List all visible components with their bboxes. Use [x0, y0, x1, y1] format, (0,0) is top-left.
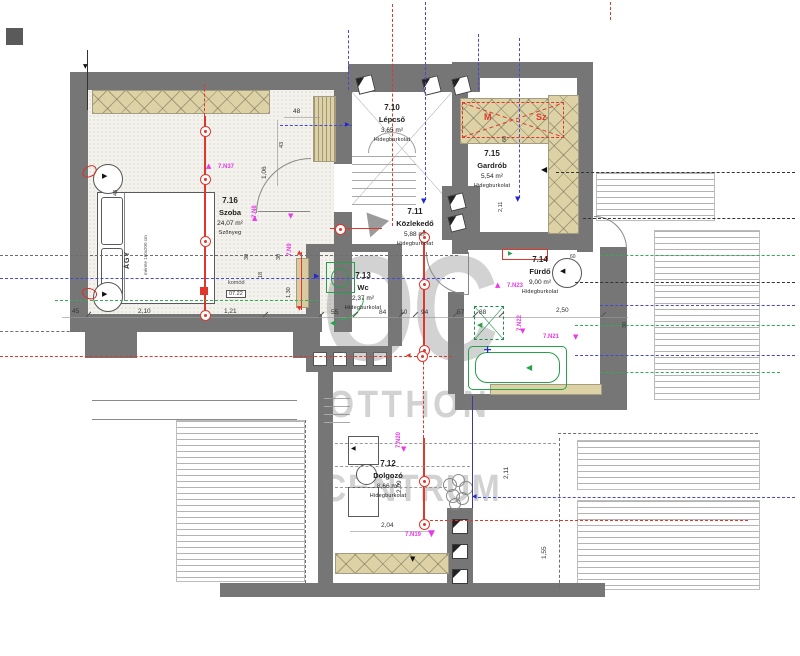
- radiator-pipe: [301, 252, 302, 310]
- room-number: 7.15: [452, 148, 532, 160]
- marker-triangle-icon: ▼: [288, 213, 293, 220]
- marker-label: 7.N21: [543, 334, 559, 340]
- dim-text: 30: [622, 322, 628, 328]
- ref-arrow-icon: ▼: [515, 196, 520, 203]
- window: [452, 544, 468, 559]
- dim-text: 2,09: [396, 480, 403, 493]
- dim-text: 84: [379, 309, 386, 316]
- room-label-lepcso: 7.10 Lépcső 3,65 m² Hidegburkolat: [352, 102, 432, 145]
- vent-window: [451, 75, 472, 96]
- room-name: Dolgozó: [348, 470, 428, 482]
- terrace-hatch-bottom-left: [176, 420, 305, 582]
- dim-text: 57: [457, 309, 464, 316]
- lamp-arrow-icon: ▶: [102, 173, 107, 180]
- sill-dolgozo: [335, 553, 449, 574]
- room-name: Közlekedő: [375, 218, 455, 230]
- room-area: 8,66 m²: [348, 482, 428, 492]
- nightstand: [93, 282, 123, 312]
- room-name: Fürdő: [500, 266, 580, 278]
- ref-line-gray-h: [583, 218, 795, 219]
- marker-label: 7.N9: [287, 243, 293, 256]
- ref-line-gray-v: [559, 438, 560, 588]
- room-number: 7.13: [325, 270, 401, 282]
- section-node: [200, 310, 211, 321]
- wardrobe-bedroom-side: [313, 96, 336, 162]
- survey-line: [87, 50, 88, 110]
- ref-line-gray-h: [0, 255, 458, 256]
- dim-text: 30: [276, 254, 282, 260]
- ref-line-blue-h: [600, 305, 795, 306]
- dim-text: 1,21: [224, 308, 237, 315]
- dim-text: 2,04: [381, 522, 394, 529]
- ref-line-gray-h: [558, 433, 758, 434]
- marker-triangle-icon: ▲: [495, 282, 500, 289]
- room-floor: Hidegburkolat: [348, 492, 428, 501]
- dim-text: 2,50: [556, 307, 569, 314]
- terrace-hatch-bottom-right-a: [577, 440, 760, 490]
- ref-line-blue-v: [425, 2, 426, 200]
- msz-flag-box: [462, 102, 564, 138]
- wc-arrow-icon: ▶: [314, 273, 319, 280]
- flag-sz-label: Sz: [536, 112, 547, 122]
- dim-text: 30: [244, 254, 250, 260]
- dim-text: 60: [570, 254, 576, 260]
- wall-segment: [70, 72, 352, 90]
- ref-line-blue-h: [478, 497, 795, 498]
- entry-arrow-icon: ◀: [541, 166, 547, 174]
- bed-divider: [124, 193, 125, 301]
- dim-text: 10: [400, 309, 407, 316]
- dim-text: 1,30: [286, 287, 292, 298]
- section-line: [204, 84, 205, 116]
- section-node: [200, 174, 211, 185]
- dim-text: 43: [279, 142, 285, 148]
- room-label-dolgozo: 7.12 Dolgozó 8,66 m² Hidegburkolat: [348, 458, 428, 501]
- room-floor: Hidegburkolat: [352, 136, 432, 145]
- marker-triangle-icon: ▼: [428, 530, 435, 539]
- flow-arrow-icon: ▼: [297, 306, 302, 312]
- flag-m-label: M: [484, 112, 492, 122]
- ref-line-blue-h: [575, 355, 795, 356]
- section-node: [419, 279, 430, 290]
- dim-text: 55: [331, 309, 338, 316]
- marker-triangle-icon: ▲: [252, 215, 257, 222]
- ref-line-navy-v: [472, 396, 473, 508]
- marker-triangle-icon: ▼: [520, 328, 525, 335]
- dim-text: 1,55: [541, 546, 548, 559]
- dim-text: 2,11: [498, 202, 504, 212]
- dim-text: 60: [502, 136, 508, 142]
- room-floor: Szőnyeg: [195, 229, 265, 238]
- room-floor: Hidegburkolat: [375, 240, 455, 249]
- room-area: 2,37 m²: [325, 294, 401, 304]
- dim-text: 48: [293, 108, 300, 115]
- room-name: Wc: [325, 282, 401, 294]
- dim-text: 1,06: [261, 166, 268, 179]
- marker-label: 7.N23: [507, 283, 523, 289]
- ref-line-green-h: [600, 372, 780, 373]
- dim-text: 2,11: [503, 467, 510, 479]
- door-leaf: [468, 252, 469, 294]
- marker-triangle-icon: ▼: [401, 446, 406, 453]
- plant: [449, 498, 461, 510]
- room-label-kozlekedo: 7.11 Közlekedő 5,88 m² Hidegburkolat: [375, 206, 455, 249]
- section-node-square: [200, 287, 208, 295]
- ref-line-gray-h: [575, 282, 795, 283]
- eaves-band: [92, 400, 297, 420]
- dim-text: 45: [72, 308, 79, 315]
- room-area: 5,54 m²: [452, 172, 532, 182]
- room-number: 7.11: [375, 206, 455, 218]
- wall-segment: [452, 62, 593, 78]
- desk-arrow-icon: ◀: [351, 446, 356, 452]
- survey-arrow-icon: ▼: [83, 64, 88, 70]
- section-node: [200, 126, 211, 137]
- bed-size-label: mérete 160x200 cm: [143, 235, 148, 275]
- sill-arrow-icon: ▼: [410, 556, 415, 563]
- wardrobe-bedroom-top: [92, 90, 270, 114]
- ref-arrow-icon: ◀: [472, 494, 477, 500]
- window: [452, 519, 468, 534]
- lamp-arrow-icon: ▶: [102, 291, 107, 298]
- room-label-gardrob: 7.15 Gardrób 5,54 m² Hidegburkolat: [452, 148, 532, 191]
- room-name: Gardrób: [452, 160, 532, 172]
- room-number: 7.10: [352, 102, 432, 114]
- section-node: [335, 224, 346, 235]
- shower-arrow-icon: ◀: [477, 322, 482, 329]
- dim-text: 94: [421, 309, 428, 316]
- terrace-hatch-top-right: [596, 172, 715, 221]
- bed-label: ÁGY: [124, 251, 131, 269]
- dim-text: 18: [258, 272, 264, 278]
- room-area: 5,88 m²: [375, 230, 455, 240]
- wall-segment: [577, 62, 593, 252]
- marker-triangle-icon: ▲: [206, 163, 211, 170]
- ref-line-blue-v: [478, 34, 479, 90]
- tub-plus-icon: +: [483, 344, 492, 355]
- grid-line: [335, 443, 556, 444]
- ref-arrow-icon: ◀: [406, 353, 411, 359]
- tub-arrow-icon: ◀: [526, 364, 532, 372]
- ref-line-green-h: [575, 325, 795, 326]
- ref-arrow-icon: ▶: [345, 122, 350, 128]
- ref-line-gray-v: [305, 420, 306, 583]
- dim-line-v: [277, 120, 278, 186]
- flow-arrow-icon: ▶: [508, 251, 513, 257]
- room-area: 3,65 m²: [352, 126, 432, 136]
- ref-line-green-h: [600, 255, 795, 256]
- room-label-wc: 7.13 Wc 2,37 m² Hidegburkolat: [325, 270, 401, 313]
- ref-line-gray-h: [0, 331, 85, 332]
- ref-line-gray-h: [556, 172, 795, 173]
- room-label-furdo: 7.14 Fürdő 9,00 m² Hidegburkolat: [500, 254, 580, 297]
- komod-code: 07.22: [226, 290, 246, 298]
- bathtub-inner: [475, 352, 560, 383]
- ref-line-blue-h: [280, 125, 352, 126]
- dim-text: 43: [113, 190, 119, 196]
- terrace-hatch-bottom-right-b: [577, 500, 760, 590]
- ref-arrow-icon: ▼: [421, 198, 426, 205]
- flow-arrow-icon: ▲: [297, 250, 302, 256]
- dim-line-h: [284, 117, 320, 118]
- marker-label: 7.N37: [218, 164, 234, 170]
- fixture-arrow-icon: ◀: [560, 268, 565, 275]
- section-node: [417, 351, 428, 362]
- room-floor: Hidegburkolat: [452, 182, 532, 191]
- ref-line-blue-v: [348, 30, 349, 90]
- section-line: [423, 352, 424, 438]
- ref-line-green-h: [55, 300, 318, 301]
- dim-text: 88: [479, 309, 486, 316]
- wall-segment: [220, 583, 605, 597]
- dim-text: 2,10: [138, 308, 151, 315]
- section-node: [200, 236, 211, 247]
- floor-plan: OC OTTHON CENTRUM ÁGY mérete 160x200 cm …: [0, 0, 800, 656]
- wc-arrow-icon: ◀: [330, 320, 335, 327]
- window: [452, 569, 468, 584]
- ref-line-red-h: [0, 356, 452, 357]
- corner-mark: [6, 28, 23, 45]
- door-leaf: [258, 211, 310, 212]
- wall-segment: [85, 332, 137, 358]
- watermark-line2: OTTHON: [328, 384, 490, 427]
- marker-label: 7.N19: [405, 532, 421, 538]
- room-floor: Hidegburkolat: [500, 288, 580, 297]
- room-number: 7.12: [348, 458, 428, 470]
- komod-label: komód: [228, 280, 245, 286]
- marker-triangle-icon: ▼: [573, 334, 578, 341]
- stair-treads: [352, 156, 416, 205]
- room-name: Lépcső: [352, 114, 432, 126]
- ref-line-red-h: [425, 520, 748, 521]
- bed-pillow: [101, 197, 123, 245]
- ref-line-red-v: [610, 2, 611, 20]
